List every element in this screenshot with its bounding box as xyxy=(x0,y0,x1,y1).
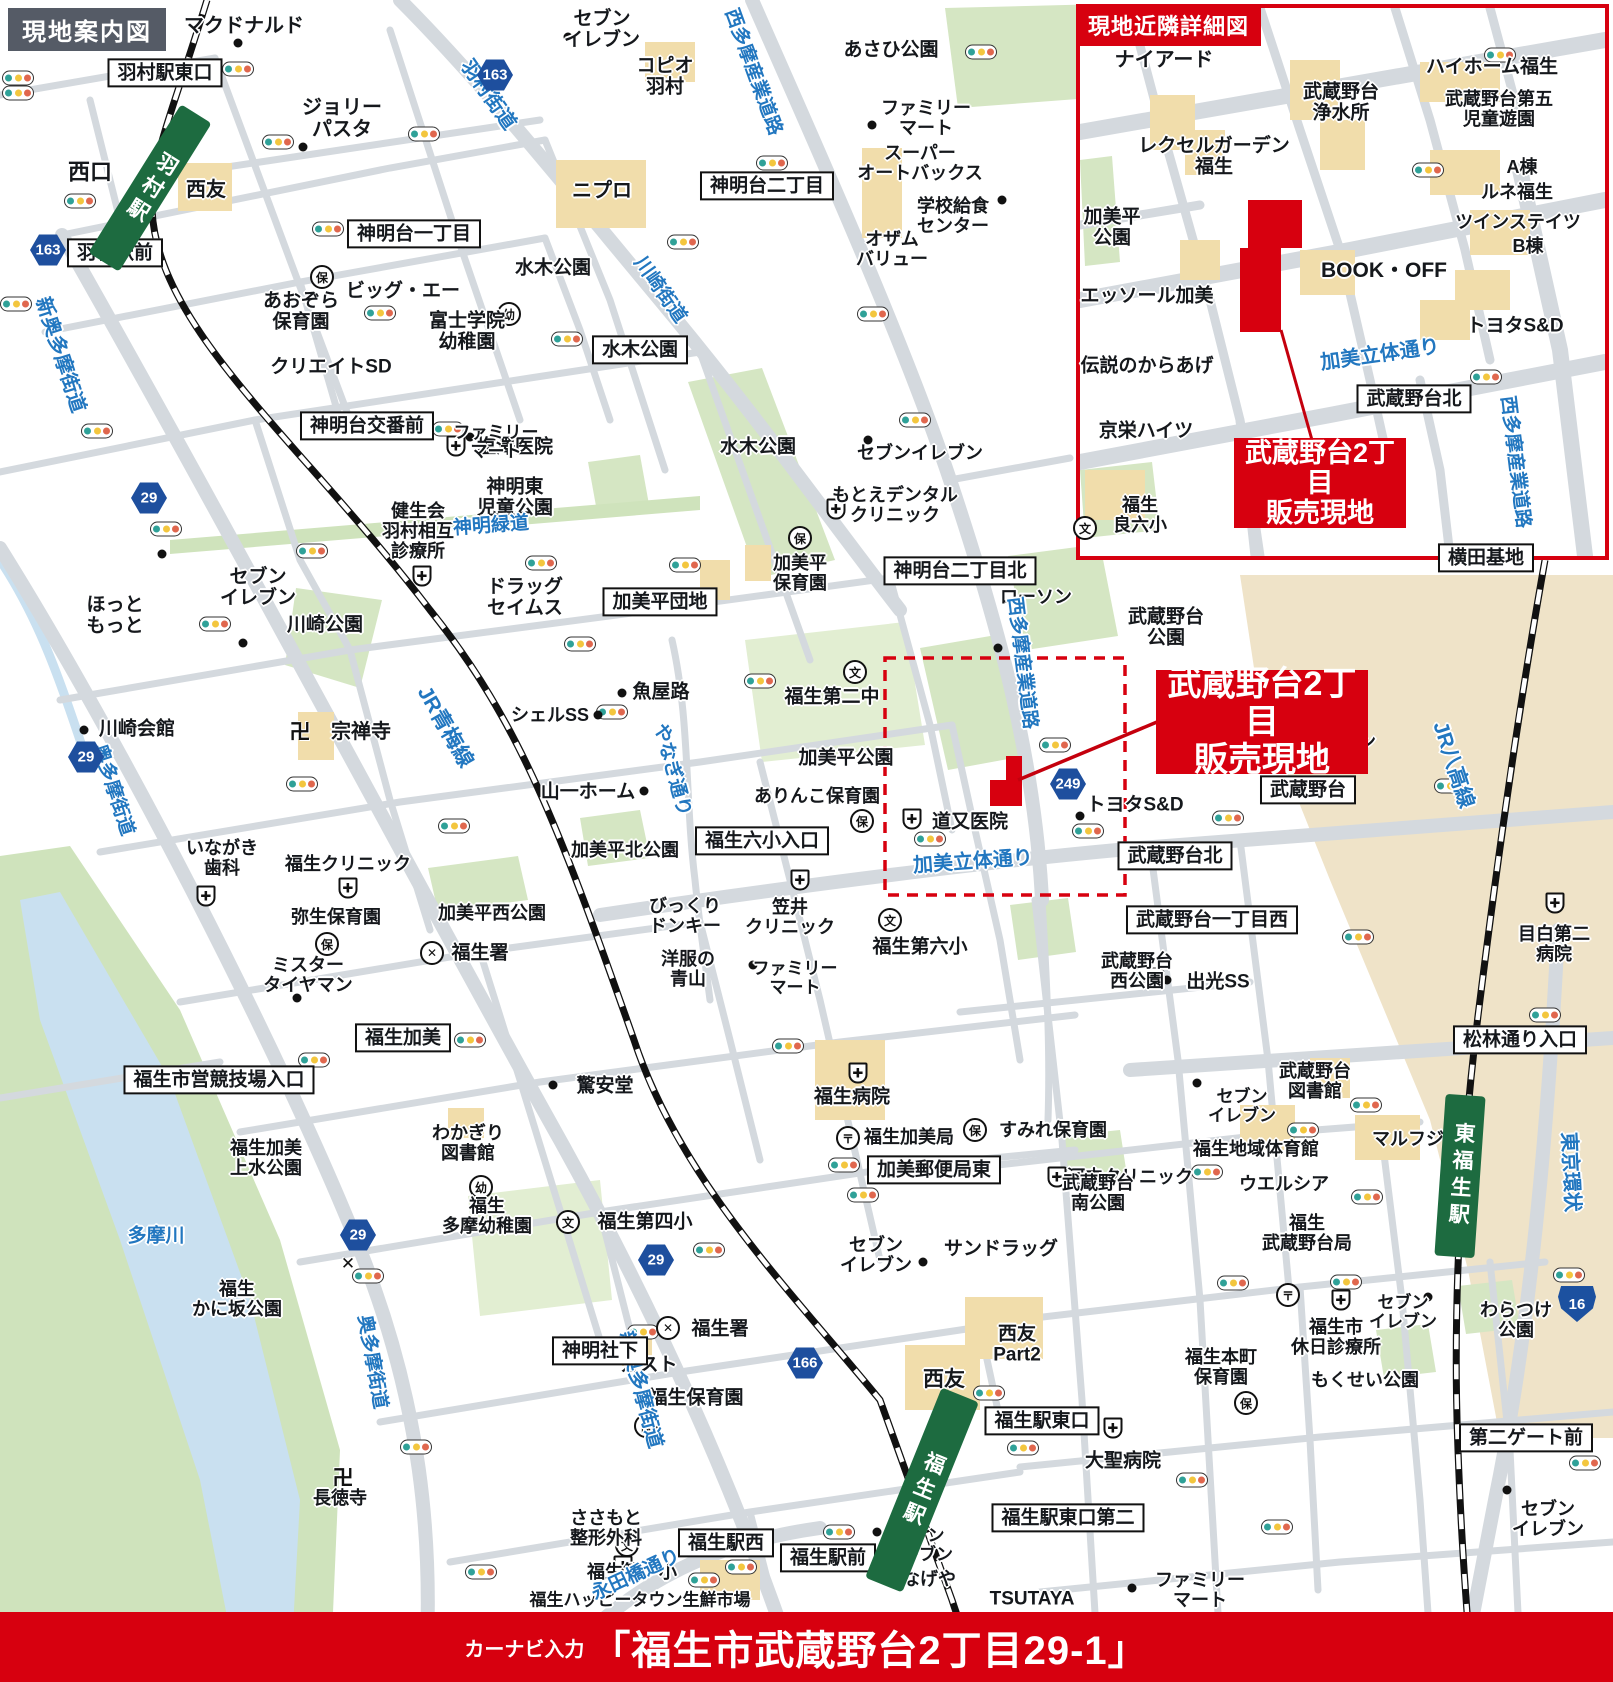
signal-dot xyxy=(1234,815,1241,822)
traffic-light-icon xyxy=(1342,930,1374,945)
place-label: 福生市 休日診療所 xyxy=(1291,1317,1381,1357)
signal-dot xyxy=(325,226,332,233)
place-label: ありんこ保育園 xyxy=(754,786,880,806)
signal-dot xyxy=(422,1444,429,1451)
place-label: 福生第二中 xyxy=(784,686,879,707)
boxed-place-label: 福生加美 xyxy=(355,1023,451,1052)
traffic-light-icon xyxy=(1007,1441,1039,1456)
boxed-place-label: 横田基地 xyxy=(1438,543,1534,572)
signal-dot xyxy=(172,526,179,533)
signal-dot xyxy=(5,75,12,82)
circle-icon: 文 xyxy=(556,1210,580,1234)
traffic-light-icon xyxy=(1176,1473,1208,1488)
signal-dot xyxy=(5,90,12,97)
place-label: 福生加美 上水公園 xyxy=(230,1138,302,1178)
traffic-light-icon xyxy=(914,832,946,847)
traffic-light-icon xyxy=(823,1525,855,1540)
signal-dot xyxy=(221,621,228,628)
signal-dot xyxy=(845,1529,852,1536)
traffic-light-icon xyxy=(408,127,440,142)
signal-dot xyxy=(715,1247,722,1254)
temple-icon: 卍 xyxy=(290,716,311,746)
inset-title: 現地近隣詳細図 xyxy=(1076,4,1261,46)
poi-dot xyxy=(994,644,1003,653)
boxed-place-label: 福生六小入口 xyxy=(695,826,829,855)
signal-dot xyxy=(225,66,232,73)
signal-dot xyxy=(24,90,31,97)
place-label: ドラッグ セイムス xyxy=(487,577,563,620)
signal-dot xyxy=(103,428,110,435)
signal-dot xyxy=(421,131,428,138)
signal-dot xyxy=(202,621,209,628)
poi-dot xyxy=(640,787,649,796)
signal-dot xyxy=(299,548,306,555)
traffic-light-icon xyxy=(1072,824,1104,839)
signal-dot xyxy=(1194,1169,1201,1176)
signal-dot xyxy=(577,641,584,648)
place-label: 京栄ハイツ xyxy=(1099,420,1194,441)
place-label: クリエイトSD xyxy=(270,356,391,377)
signal-dot xyxy=(1352,1279,1359,1286)
place-label: 弥生保育園 xyxy=(291,907,381,927)
traffic-light-icon xyxy=(772,1039,804,1054)
traffic-light-icon xyxy=(669,558,701,573)
traffic-light-icon xyxy=(1261,1520,1293,1535)
signal-dot xyxy=(689,239,696,246)
place-label: 武蔵野台 図書館 xyxy=(1279,1061,1351,1101)
signal-dot xyxy=(77,198,84,205)
circle-icon: 〒 xyxy=(1276,1283,1300,1307)
signal-dot xyxy=(1425,167,1432,174)
signal-dot xyxy=(1225,815,1232,822)
place-label: 笠井 クリニック xyxy=(745,897,835,937)
place-label: 水木公園 xyxy=(720,436,796,457)
signal-dot xyxy=(987,49,994,56)
site-label-inset: 武蔵野台2丁目 販売現地 xyxy=(1234,438,1406,528)
traffic-light-icon xyxy=(564,637,596,652)
traffic-light-icon xyxy=(1351,1190,1383,1205)
place-label: あおぞら 保育園 xyxy=(263,291,339,334)
place-label: ジョリー パスタ xyxy=(302,97,382,142)
signal-dot xyxy=(850,1192,857,1199)
signal-dot xyxy=(1354,1194,1361,1201)
signal-dot xyxy=(995,1390,1002,1397)
poi-dot xyxy=(1503,1486,1512,1495)
signal-dot xyxy=(84,428,91,435)
signal-dot xyxy=(921,417,928,424)
signal-dot xyxy=(710,1577,717,1584)
boxed-place-label: 福生駅前 xyxy=(780,1543,876,1572)
place-label: 洋服の 青山 xyxy=(661,949,715,989)
signal-dot xyxy=(747,678,754,685)
signal-dot xyxy=(1213,1169,1220,1176)
place-label: 加美平公園 xyxy=(798,747,893,768)
navi-address: 「福生市武蔵野台2丁目29-1」 xyxy=(590,1618,1148,1676)
traffic-light-icon xyxy=(1470,370,1502,385)
signal-dot xyxy=(869,1192,876,1199)
traffic-light-icon xyxy=(1212,811,1244,826)
signal-dot xyxy=(1290,1127,1297,1134)
signal-dot xyxy=(1542,1012,1549,1019)
poi-dot xyxy=(873,1528,882,1537)
traffic-light-icon xyxy=(1350,1098,1382,1113)
traffic-light-icon xyxy=(857,307,889,322)
signal-dot xyxy=(478,1569,485,1576)
traffic-light-icon xyxy=(312,222,344,237)
signal-dot xyxy=(1591,1460,1598,1467)
signal-dot xyxy=(1020,1445,1027,1452)
signal-dot xyxy=(785,1043,792,1050)
signal-dot xyxy=(1010,1445,1017,1452)
circle-icon: 保 xyxy=(963,1118,987,1142)
place-label: セブン イレブン xyxy=(840,1235,912,1275)
signal-dot xyxy=(936,836,943,843)
map-stage: 現地案内図 xyxy=(0,0,1613,1682)
place-label: 福生第四小 xyxy=(597,1211,692,1232)
signal-dot xyxy=(1061,742,1068,749)
signal-dot xyxy=(457,1037,464,1044)
signal-dot xyxy=(1052,742,1059,749)
place-label: 武蔵野台 西公園 xyxy=(1101,951,1173,991)
place-label: セブン イレブン xyxy=(1369,1293,1437,1331)
signal-dot xyxy=(691,1577,698,1584)
boxed-place-label: 武蔵野台一丁目西 xyxy=(1126,905,1298,934)
signal-dot xyxy=(672,562,679,569)
place-label: すみれ保育園 xyxy=(999,1120,1107,1140)
place-label: ハイホーム福生 xyxy=(1426,56,1558,77)
place-label: もくせい公園 xyxy=(1311,1370,1419,1390)
x-mark-icon: ✕ xyxy=(341,1254,355,1274)
place-label: 福生 良六小 xyxy=(1113,495,1167,535)
signal-dot xyxy=(334,226,341,233)
signal-dot xyxy=(1373,1194,1380,1201)
traffic-light-icon xyxy=(744,674,776,689)
traffic-light-icon xyxy=(1287,1123,1319,1138)
signal-dot xyxy=(365,1273,372,1280)
signal-dot xyxy=(912,417,919,424)
signal-dot xyxy=(680,239,687,246)
traffic-light-icon xyxy=(352,1269,384,1284)
boxed-place-label: 武蔵野台北 xyxy=(1356,384,1471,413)
traffic-light-icon xyxy=(688,1573,720,1588)
hospital-icon: ✚ xyxy=(413,566,432,587)
signal-dot xyxy=(831,1162,838,1169)
place-label: ファミリー マート xyxy=(753,959,838,997)
boxed-place-label: 神明台二丁目 xyxy=(700,171,834,200)
signal-dot xyxy=(1300,1127,1307,1134)
traffic-light-icon xyxy=(222,62,254,77)
signal-dot xyxy=(445,426,452,433)
poi-dot xyxy=(618,689,627,698)
circle-icon: 文 xyxy=(1073,516,1097,540)
traffic-light-icon xyxy=(81,424,113,439)
signal-dot xyxy=(682,562,689,569)
signal-dot xyxy=(309,548,316,555)
place-label: 福生ハッピータウン生鮮市場 xyxy=(530,1590,751,1609)
traffic-light-icon xyxy=(667,235,699,250)
place-label: TSUTAYA xyxy=(990,1588,1075,1609)
place-label: ミスター タイヤマン xyxy=(263,955,352,995)
hospital-icon: ✚ xyxy=(1332,1290,1351,1311)
signal-dot xyxy=(1473,374,1480,381)
place-label: ファミリー マート xyxy=(881,98,971,138)
place-label: セブン イレブン xyxy=(564,9,640,52)
signal-dot xyxy=(917,836,924,843)
signal-dot xyxy=(320,1057,327,1064)
signal-dot xyxy=(528,560,535,567)
place-label: 道又医院 xyxy=(932,811,1008,832)
signal-dot xyxy=(794,1043,801,1050)
signal-dot xyxy=(968,49,975,56)
signal-dot xyxy=(1572,1460,1579,1467)
traffic-light-icon xyxy=(1553,1268,1585,1283)
traffic-light-icon xyxy=(1217,1276,1249,1291)
poi-dot xyxy=(239,639,248,648)
place-label: もとえデンタル クリニック xyxy=(832,485,958,525)
circle-icon: ✕ xyxy=(420,941,444,965)
signal-dot xyxy=(649,1329,656,1336)
signal-dot xyxy=(640,1329,647,1336)
place-label: ファミリー マート xyxy=(454,423,539,461)
signal-dot xyxy=(265,139,272,146)
signal-dot xyxy=(476,1037,483,1044)
traffic-light-icon xyxy=(199,617,231,632)
circle-icon: 保 xyxy=(1234,1391,1258,1415)
site-label-main: 武蔵野台2丁目 販売現地 xyxy=(1156,670,1368,774)
signal-dot xyxy=(747,1564,754,1571)
boxed-place-label: 福生市営競技場入口 xyxy=(123,1065,314,1094)
place-label: あさひ公園 xyxy=(843,39,938,60)
signal-dot xyxy=(430,131,437,138)
hospital-icon: ✚ xyxy=(1546,893,1565,914)
traffic-light-icon xyxy=(1529,1008,1561,1023)
poi-dot xyxy=(234,39,243,48)
navi-footer: カーナビ入力 「福生市武蔵野台2丁目29-1」 xyxy=(0,1612,1613,1682)
place-label: 福生地域体育館 xyxy=(1193,1139,1319,1159)
boxed-place-label: 神明台一丁目 xyxy=(347,219,481,248)
signal-dot xyxy=(609,709,616,716)
signal-dot xyxy=(976,1390,983,1397)
signal-dot xyxy=(564,336,571,343)
place-label: 福生本町 保育園 xyxy=(1185,1347,1257,1387)
traffic-light-icon xyxy=(828,1158,860,1173)
signal-dot xyxy=(299,781,306,788)
signal-dot xyxy=(67,198,74,205)
signal-dot xyxy=(738,1564,745,1571)
place-label: 加美平西公園 xyxy=(438,903,546,923)
place-label: ウエルシア xyxy=(1239,1174,1329,1194)
signal-dot xyxy=(487,1569,494,1576)
circle-icon: 〒 xyxy=(836,1126,860,1150)
circle-icon: 保 xyxy=(850,809,874,833)
boxed-place-label: 加美平団地 xyxy=(602,587,717,616)
boxed-place-label: 神明台交番前 xyxy=(300,411,434,440)
circle-icon: 保 xyxy=(315,932,339,956)
place-label: 武蔵野台 南公園 xyxy=(1062,1173,1134,1213)
place-label: 西友 xyxy=(186,179,226,201)
signal-dot xyxy=(573,336,580,343)
signal-dot xyxy=(986,1390,993,1397)
traffic-light-icon xyxy=(847,1188,879,1203)
signal-dot xyxy=(1309,1127,1316,1134)
signal-dot xyxy=(1551,1012,1558,1019)
signal-dot xyxy=(441,823,448,830)
place-label: 驚安堂 xyxy=(576,1075,633,1096)
place-label: 加美平北公園 xyxy=(571,840,679,860)
signal-dot xyxy=(451,823,458,830)
place-label: びっくり ドンキー xyxy=(649,896,721,936)
place-label: 武蔵野台 公園 xyxy=(1128,607,1204,650)
signal-dot xyxy=(3,301,10,308)
traffic-light-icon xyxy=(1191,1165,1223,1180)
signal-dot xyxy=(435,426,442,433)
signal-dot xyxy=(1220,1280,1227,1287)
traffic-light-icon xyxy=(1330,1275,1362,1290)
place-label: B棟 xyxy=(1513,236,1544,256)
signal-dot xyxy=(1094,828,1101,835)
place-label: セブン イレブン xyxy=(1208,1087,1276,1125)
signal-dot xyxy=(691,562,698,569)
place-label: 福生署 xyxy=(691,1318,748,1339)
place-label: マルフジ xyxy=(1372,1129,1444,1149)
signal-dot xyxy=(244,66,251,73)
signal-dot xyxy=(902,417,909,424)
place-label: 川崎公園 xyxy=(287,614,363,635)
signal-dot xyxy=(1239,1280,1246,1287)
signal-dot xyxy=(769,160,776,167)
place-label: エッソール加美 xyxy=(1080,285,1213,306)
signal-dot xyxy=(1355,934,1362,941)
traffic-light-icon xyxy=(286,777,318,792)
place-label: セブンイレブン xyxy=(857,443,983,463)
signal-dot xyxy=(841,1162,848,1169)
traffic-light-icon xyxy=(1039,738,1071,753)
boxed-place-label: 福生駅西 xyxy=(678,1528,774,1557)
signal-dot xyxy=(1437,783,1444,790)
circle-icon: 保 xyxy=(788,526,812,550)
signal-dot xyxy=(1345,934,1352,941)
place-label: コピオ 羽村 xyxy=(636,56,693,99)
signal-dot xyxy=(1582,1460,1589,1467)
signal-dot xyxy=(538,560,545,567)
signal-dot xyxy=(1333,1279,1340,1286)
circle-icon: 文 xyxy=(843,660,867,684)
poi-dot xyxy=(1193,1079,1202,1088)
signal-dot xyxy=(759,160,766,167)
traffic-light-icon xyxy=(973,1386,1005,1401)
traffic-light-icon xyxy=(296,544,328,559)
place-label: 山一ホーム xyxy=(541,781,635,802)
signal-dot xyxy=(927,836,934,843)
place-label: ルネ福生 xyxy=(1481,182,1553,202)
traffic-light-icon xyxy=(2,86,34,101)
place-label: 福生加美局 xyxy=(864,1127,954,1147)
signal-dot xyxy=(403,1444,410,1451)
signal-dot xyxy=(1364,1194,1371,1201)
signal-dot xyxy=(212,621,219,628)
signal-dot xyxy=(22,301,29,308)
traffic-light-icon xyxy=(0,297,32,312)
place-label: 目白第二 病院 xyxy=(1518,924,1590,964)
place-label: 水木公園 xyxy=(515,257,591,278)
place-label: 福生 武蔵野台局 xyxy=(1262,1213,1352,1253)
signal-dot xyxy=(1575,1272,1582,1279)
place-label: 福生第六小 xyxy=(872,936,967,957)
place-label: スーパー オートバックス xyxy=(857,143,982,183)
signal-dot xyxy=(728,1564,735,1571)
signal-dot xyxy=(15,90,22,97)
place-label: 福生クリニック xyxy=(285,854,411,874)
signal-dot xyxy=(826,1529,833,1536)
signal-dot xyxy=(1264,1524,1271,1531)
signal-dot xyxy=(1230,1280,1237,1287)
signal-dot xyxy=(1566,1272,1573,1279)
signal-dot xyxy=(757,678,764,685)
place-label: 福生 かに坂公園 xyxy=(192,1279,282,1319)
signal-dot xyxy=(978,49,985,56)
poi-dot xyxy=(1076,812,1085,821)
place-label: 福生保育園 xyxy=(648,1387,743,1408)
signal-dot xyxy=(318,548,325,555)
place-label: 健生会 羽村相互 診療所 xyxy=(382,501,454,561)
traffic-light-icon xyxy=(2,71,34,86)
place-label: 武蔵野台第五 児童遊園 xyxy=(1445,89,1553,129)
signal-dot xyxy=(367,310,374,317)
road-label: 多摩川 xyxy=(127,1225,184,1246)
place-label: 宗禅寺 xyxy=(331,721,391,743)
signal-dot xyxy=(860,311,867,318)
boxed-place-label: 第二ゲート前 xyxy=(1459,1423,1593,1452)
traffic-light-icon xyxy=(150,522,182,537)
place-label: 長徳寺 xyxy=(313,1488,367,1508)
signal-dot xyxy=(706,1247,713,1254)
signal-dot xyxy=(377,310,384,317)
place-label: 出光SS xyxy=(1186,971,1249,992)
place-label: 福生 多摩幼稚園 xyxy=(442,1196,532,1236)
signal-dot xyxy=(586,641,593,648)
signal-dot xyxy=(701,1577,708,1584)
poi-dot xyxy=(998,196,1007,205)
signal-dot xyxy=(618,709,625,716)
place-label: トヨタS&D xyxy=(1466,315,1563,336)
signal-dot xyxy=(1189,1477,1196,1484)
signal-dot xyxy=(163,526,170,533)
signal-dot xyxy=(1532,1012,1539,1019)
traffic-light-icon xyxy=(262,135,294,150)
boxed-place-label: 加美郵便局東 xyxy=(867,1155,1001,1184)
road-label: 東京環状 xyxy=(1557,1131,1584,1212)
signal-dot xyxy=(1029,1445,1036,1452)
place-label: 伝説のからあげ xyxy=(1080,355,1213,376)
signal-dot xyxy=(1353,1102,1360,1109)
circle-icon: ✕ xyxy=(656,1316,680,1340)
place-label: サンドラッグ xyxy=(944,1238,1058,1259)
signal-dot xyxy=(879,311,886,318)
signal-dot xyxy=(374,1273,381,1280)
poi-dot xyxy=(919,1258,928,1267)
place-label: ほっと もっと xyxy=(86,595,143,638)
signal-dot xyxy=(1364,934,1371,941)
poi-dot xyxy=(80,726,89,735)
traffic-light-icon xyxy=(64,194,96,209)
traffic-light-icon xyxy=(693,1243,725,1258)
poi-dot xyxy=(158,550,167,559)
signal-dot xyxy=(153,526,160,533)
traffic-light-icon xyxy=(400,1440,432,1455)
boxed-place-label: 水木公園 xyxy=(592,335,688,364)
traffic-light-icon xyxy=(551,332,583,347)
hospital-icon: ✚ xyxy=(339,878,358,899)
